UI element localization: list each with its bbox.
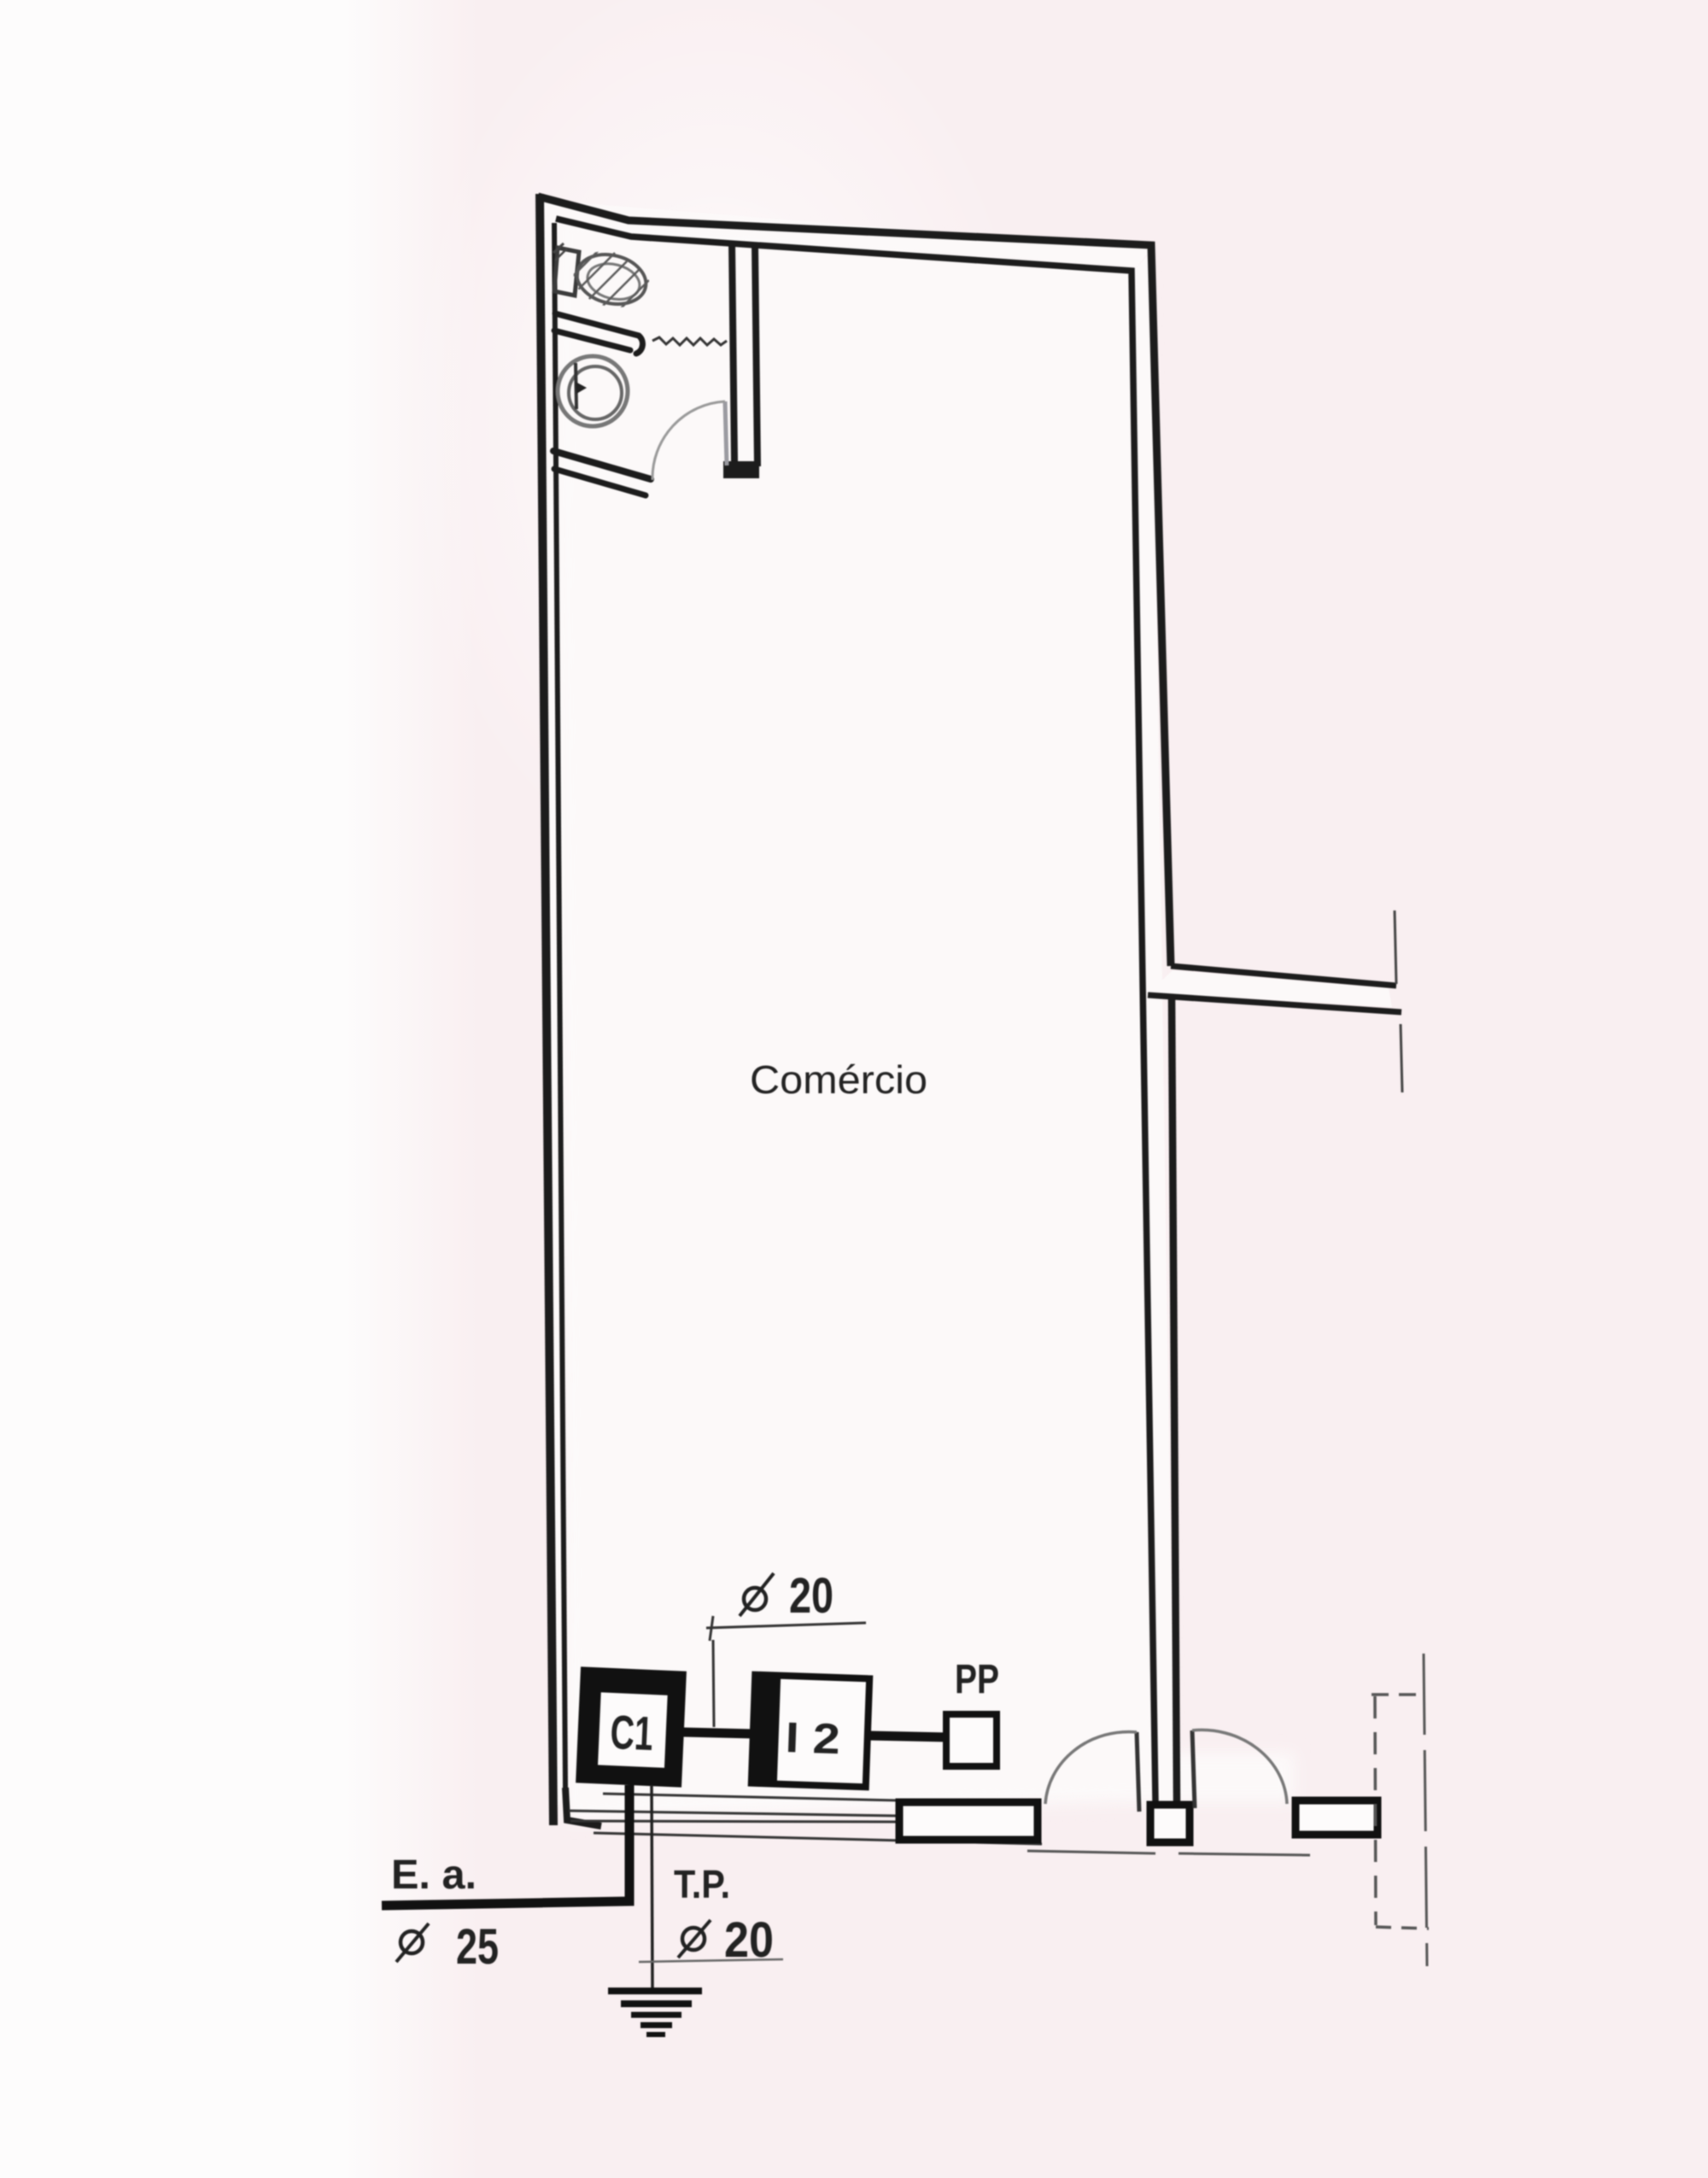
svg-text:Comércio: Comércio <box>750 1057 927 1102</box>
svg-text:E. a.: E. a. <box>391 1853 477 1898</box>
svg-text:I 2: I 2 <box>785 1713 841 1763</box>
svg-text:PP: PP <box>955 1657 999 1702</box>
svg-text:25: 25 <box>456 1919 499 1975</box>
svg-text:T.P.: T.P. <box>674 1862 730 1906</box>
svg-text:20: 20 <box>789 1568 834 1624</box>
svg-text:C1: C1 <box>609 1705 654 1760</box>
